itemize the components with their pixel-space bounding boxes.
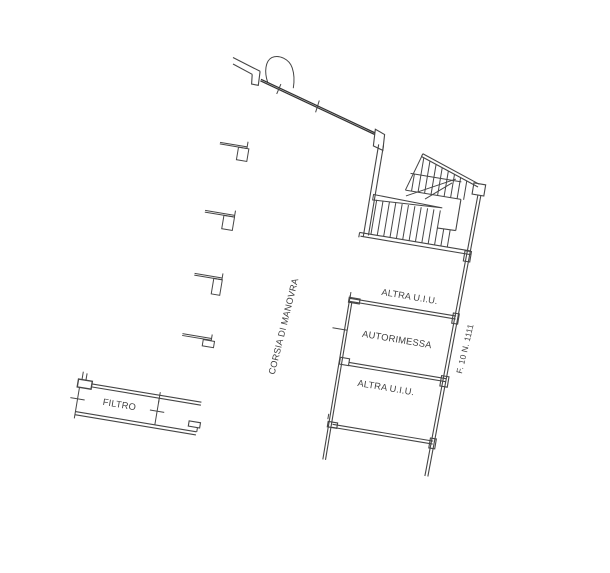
svg-text:FILTRO: FILTRO: [102, 397, 137, 412]
svg-text:ALTRA U.I.U.: ALTRA U.I.U.: [381, 287, 439, 306]
svg-text:CORSIA DI MANOVRA: CORSIA DI MANOVRA: [267, 276, 301, 375]
svg-text:ALTRA U.I.U.: ALTRA U.I.U.: [357, 378, 415, 397]
svg-text:AUTORIMESSA: AUTORIMESSA: [361, 328, 433, 351]
svg-text:F. 10 N. 1111: F. 10 N. 1111: [454, 323, 476, 375]
